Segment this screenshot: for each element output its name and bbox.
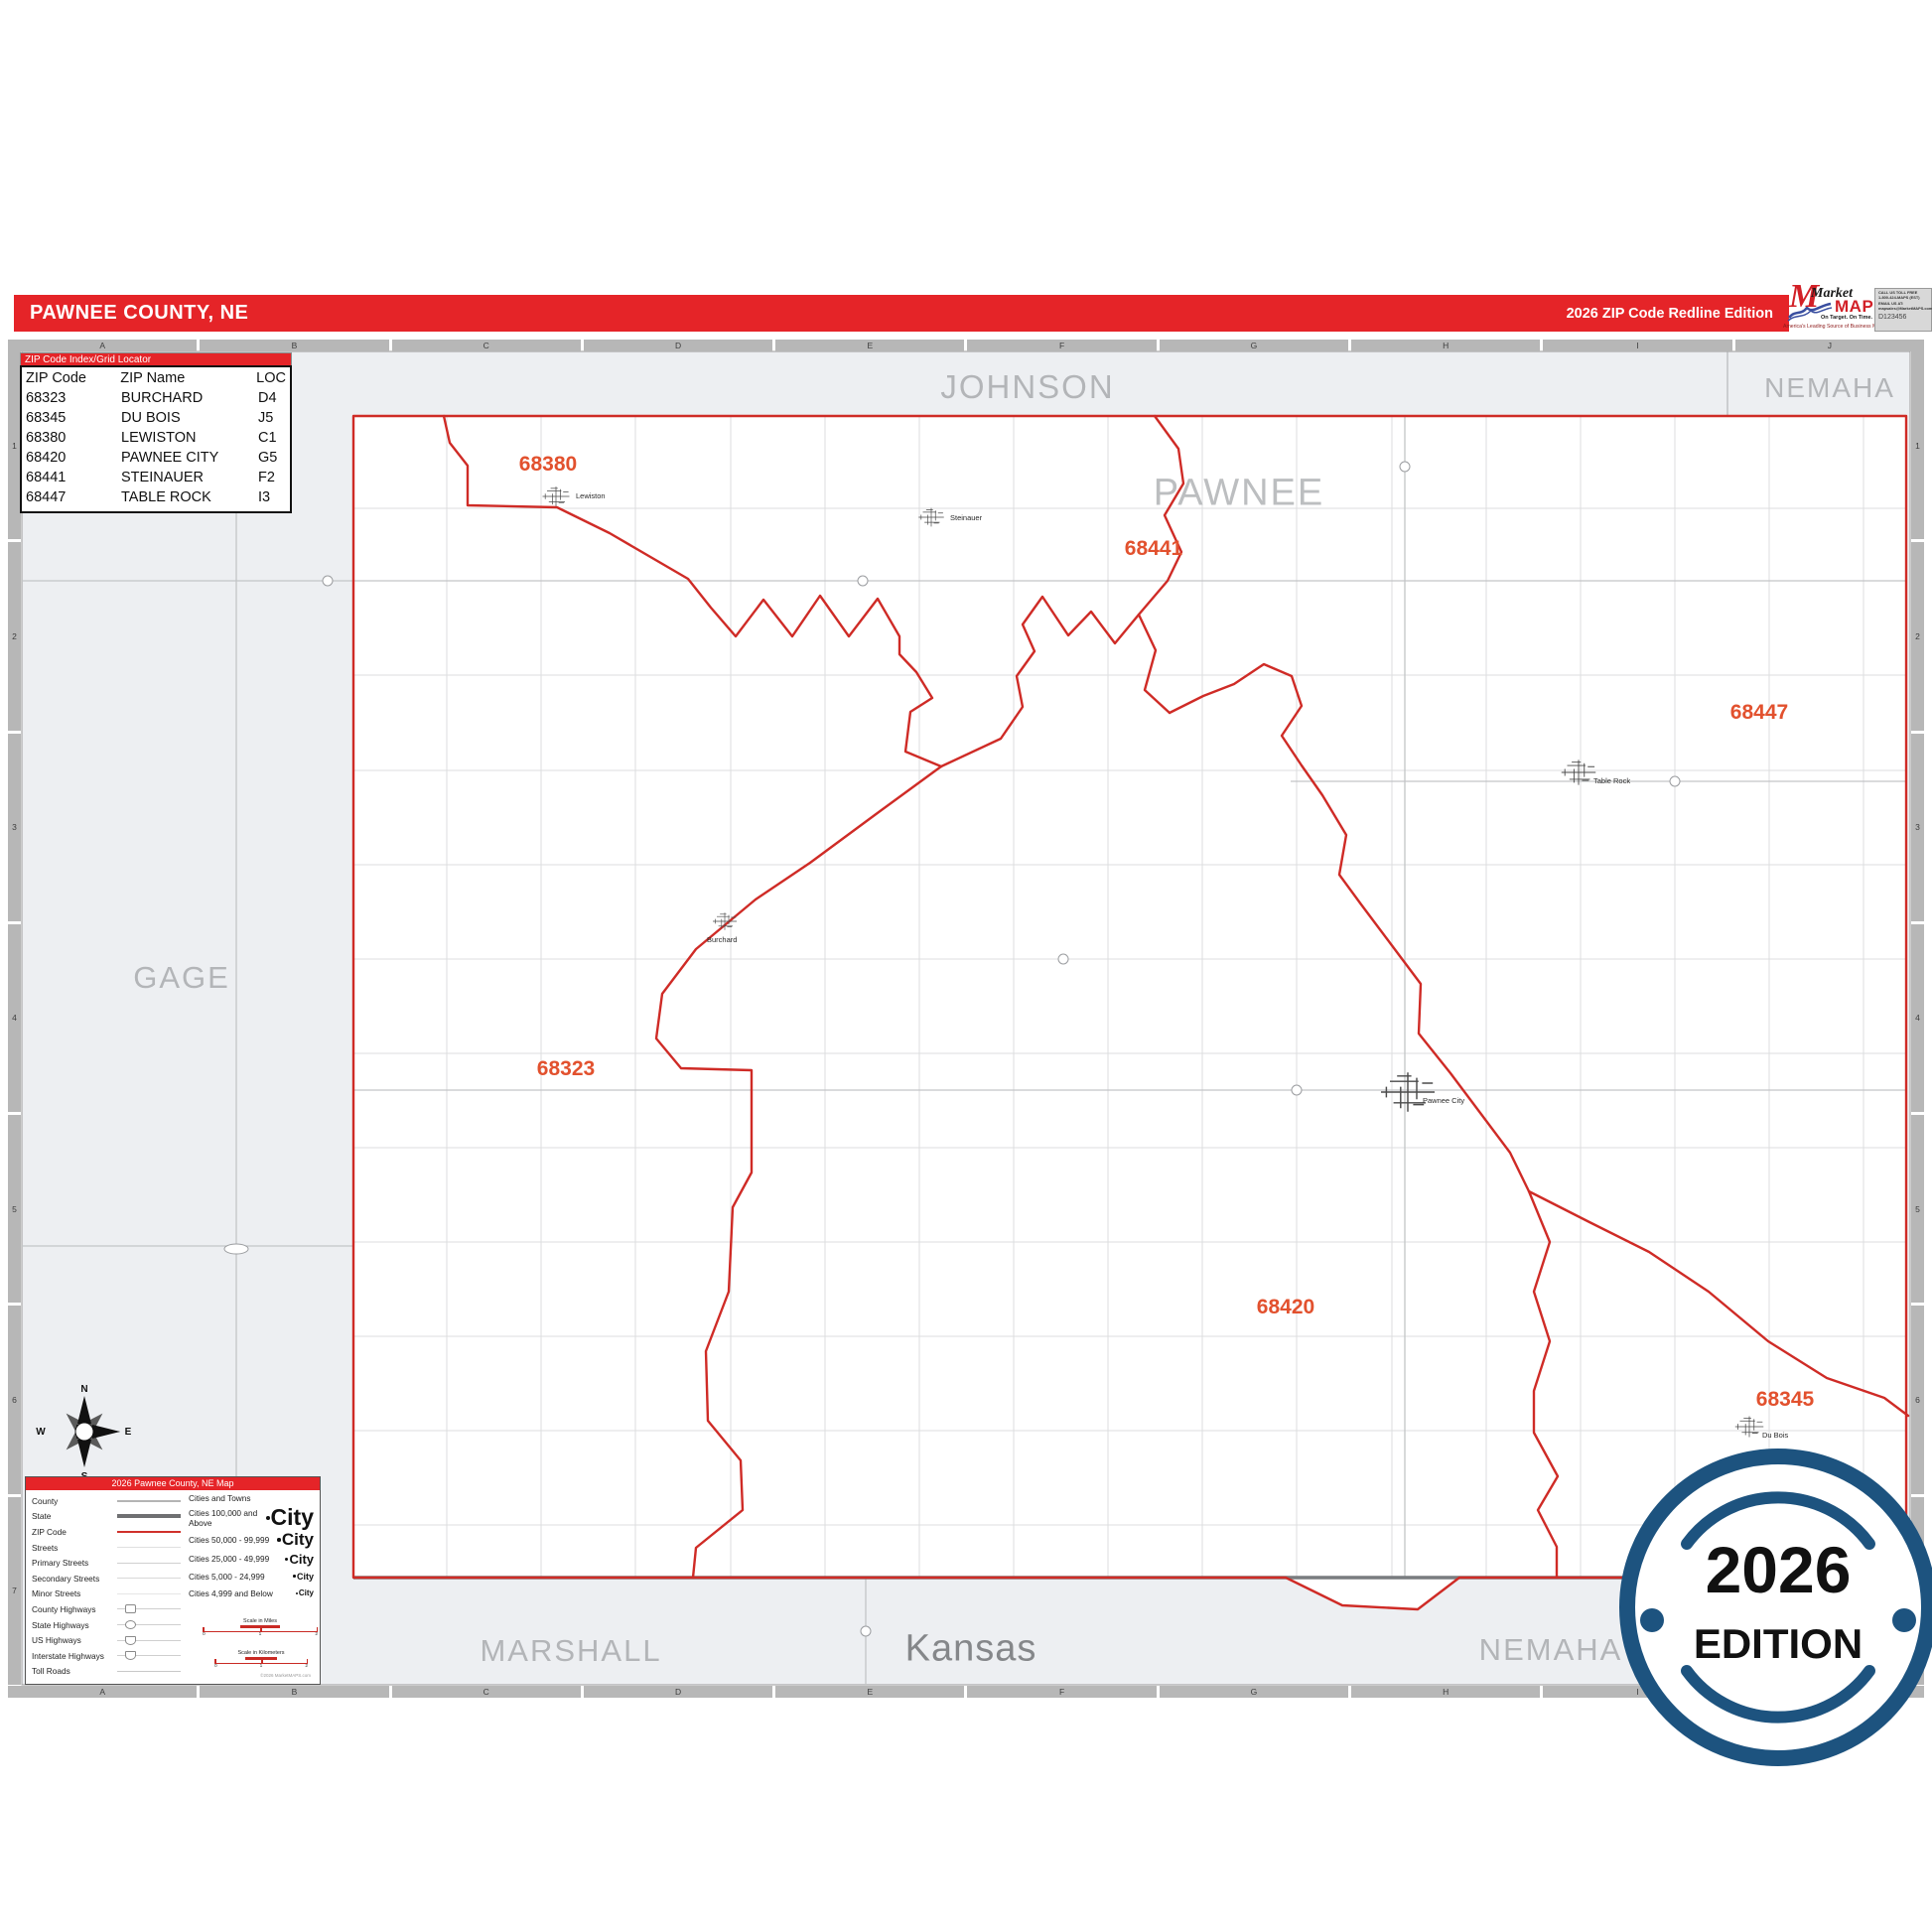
zip-line-sample: [117, 1531, 181, 1533]
grid-row-label: 2: [1911, 542, 1924, 730]
state-label-kansas: Kansas: [905, 1628, 1037, 1671]
city-dot-icon: [277, 1538, 281, 1542]
scale-km-title: Scale in Kilometers: [214, 1650, 308, 1656]
city-class-label: Cities 50,000 - 99,999: [189, 1535, 269, 1545]
grid-row-label: 3: [8, 734, 21, 921]
zip-loc-cell: J5: [258, 408, 286, 428]
grid-col-label: H: [1351, 1686, 1540, 1698]
page-title: PAWNEE COUNTY, NE: [30, 302, 248, 325]
zip-name-cell: DU BOIS: [121, 408, 258, 428]
grid-col-label: E: [775, 340, 964, 351]
town-label-steinauer: Steinauer: [950, 513, 982, 522]
edition-subtitle: 2026 ZIP Code Redline Edition: [1567, 306, 1773, 322]
town-label-pawnee-city: Pawnee City: [1423, 1096, 1464, 1105]
zip-name-cell: BURCHARD: [121, 388, 258, 408]
grid-ruler-top: A B C D E F G H I J: [8, 340, 1924, 351]
city-class-label: Cities 4,999 and Below: [189, 1588, 273, 1598]
zip-loc-cell: I3: [258, 487, 286, 507]
zip-code-cell: 68323: [26, 388, 121, 408]
contact-line: 1-800-424-MAPS (EST): [1878, 296, 1928, 301]
legend-cities: Cities and Towns Cities 100,000 and Abov…: [189, 1493, 314, 1680]
legend-item-label: Interstate Highways: [32, 1651, 117, 1661]
zip-index-row: 68323 BURCHARD D4: [26, 388, 286, 408]
neighbor-label-nemaha-bottom: NEMAHA: [1479, 1632, 1623, 1668]
zip-label-68345: 68345: [1756, 1388, 1814, 1412]
zip-code-cell: 68441: [26, 468, 121, 487]
city-sample-text: City: [289, 1552, 314, 1567]
zip-code-cell: 68447: [26, 487, 121, 507]
legend-item-label: Toll Roads: [32, 1666, 117, 1676]
city-dot-icon: [285, 1558, 288, 1561]
town-label-lewiston: Lewiston: [576, 491, 606, 500]
scale-tick: 0: [203, 1632, 206, 1637]
grid-row-label: 5: [1911, 1115, 1924, 1303]
compass-w-label: W: [36, 1427, 46, 1438]
grid-row-label: 4: [1911, 924, 1924, 1112]
town-label-burchard: Burchard: [707, 935, 737, 944]
state-highway-shield-icon: [125, 1620, 136, 1629]
grid-col-label: C: [392, 340, 581, 351]
grid-col-label: A: [8, 1686, 197, 1698]
zip-loc-cell: C1: [258, 428, 286, 448]
scale-bar-km: Scale in Kilometers 0 1 2: [214, 1650, 308, 1669]
zip-index-col-loc: LOC: [256, 368, 286, 388]
grid-col-label: G: [1160, 1686, 1348, 1698]
zip-name-cell: STEINAUER: [121, 468, 258, 487]
zip-code-cell: 68420: [26, 448, 121, 468]
county-highway-shield-icon: [125, 1604, 136, 1613]
grid-row-label: 3: [1911, 734, 1924, 921]
zip-label-68323: 68323: [537, 1057, 595, 1081]
city-sample-text: City: [297, 1572, 314, 1582]
grid-col-label: F: [967, 1686, 1156, 1698]
minor-street-line-sample: [117, 1593, 181, 1594]
city-dot-icon: [296, 1592, 298, 1594]
grid-col-label: I: [1543, 340, 1731, 351]
zip-index-title: ZIP Code Index/Grid Locator: [20, 352, 292, 365]
zip-loc-cell: D4: [258, 388, 286, 408]
logo-tagline: On Target. On Time.: [1821, 315, 1872, 321]
zip-name-cell: LEWISTON: [121, 428, 258, 448]
zip-index-header-row: ZIP Code ZIP Name LOC: [26, 368, 286, 388]
grid-row-label: 5: [8, 1115, 21, 1303]
street-line-sample: [117, 1547, 181, 1548]
grid-col-label: G: [1160, 340, 1348, 351]
legend-item-label: ZIP Code: [32, 1527, 117, 1537]
zip-name-cell: PAWNEE CITY: [121, 448, 258, 468]
map-legend: 2026 Pawnee County, NE Map County State …: [25, 1476, 321, 1685]
map-poster-page: N E S W PAWNEE COUNTY, NE 2026 ZIP Code …: [0, 0, 1932, 1932]
zip-index-row: 68345 DU BOIS J5: [26, 408, 286, 428]
grid-col-label: J: [1735, 340, 1924, 351]
town-label-table-rock: Table Rock: [1593, 776, 1630, 785]
secondary-street-line-sample: [117, 1578, 181, 1579]
zip-index-row: 68447 TABLE ROCK I3: [26, 487, 286, 507]
zip-code-cell: 68380: [26, 428, 121, 448]
legend-item-label: County: [32, 1496, 117, 1506]
zip-loc-cell: G5: [258, 448, 286, 468]
grid-col-label: D: [584, 340, 772, 351]
product-code: D123456: [1878, 314, 1928, 321]
city-dot-icon: [266, 1516, 270, 1520]
legend-item-label: Primary Streets: [32, 1558, 117, 1568]
zip-index-row: 68380 LEWISTON C1: [26, 428, 286, 448]
grid-row-label: 2: [8, 542, 21, 730]
scale-tick: 1: [260, 1664, 263, 1669]
logo-subtitle: America's Leading Source of Business Map…: [1783, 324, 1885, 330]
county-line-sample: [117, 1500, 181, 1502]
county-label-pawnee: PAWNEE: [1154, 473, 1324, 515]
scale-tick: 1: [259, 1632, 262, 1637]
city-class-label: Cities 100,000 and Above: [189, 1508, 266, 1528]
neighbor-label-gage: GAGE: [133, 960, 230, 996]
zip-index-table: ZIP Code Index/Grid Locator ZIP Code ZIP…: [20, 352, 292, 513]
us-highway-sample: [117, 1640, 181, 1641]
us-highway-shield-icon: [125, 1636, 136, 1645]
zip-index-col-code: ZIP Code: [26, 368, 120, 388]
toll-road-sample: [117, 1671, 181, 1672]
legend-item-label: Streets: [32, 1543, 117, 1553]
city-sample-text: City: [282, 1530, 314, 1550]
legend-item-label: Minor Streets: [32, 1588, 117, 1598]
zip-label-68441: 68441: [1125, 537, 1182, 561]
title-bar: PAWNEE COUNTY, NE 2026 ZIP Code Redline …: [14, 295, 1789, 332]
badge-year: 2026: [1706, 1533, 1852, 1606]
zip-name-cell: TABLE ROCK: [121, 487, 258, 507]
compass-n-label: N: [80, 1384, 87, 1395]
city-sample-text: City: [299, 1588, 314, 1597]
grid-ruler-left: 1 2 3 4 5 6 7: [8, 351, 21, 1685]
marketmaps-logo: M Market MAPS On Target. On Time. Americ…: [1789, 282, 1932, 337]
town-label-du-bois: Du Bois: [1762, 1431, 1788, 1440]
state-highway-sample: [117, 1624, 181, 1625]
state-line-sample: [117, 1514, 181, 1518]
primary-street-line-sample: [117, 1563, 181, 1564]
grid-row-label: 6: [8, 1306, 21, 1493]
legend-item-label: US Highways: [32, 1635, 117, 1645]
scale-bar-miles: Scale in Miles 0 1 2: [203, 1618, 318, 1637]
zip-label-68380: 68380: [519, 453, 577, 477]
neighbor-label-marshall: MARSHALL: [480, 1633, 661, 1669]
zip-index-row: 68441 STEINAUER F2: [26, 468, 286, 487]
scale-tick: 2: [315, 1632, 318, 1637]
legend-item-label: State Highways: [32, 1620, 117, 1630]
county-highway-sample: [117, 1608, 181, 1609]
legend-item-label: Secondary Streets: [32, 1574, 117, 1584]
edition-badge: 2026 EDITION: [1612, 1442, 1932, 1773]
logo-contact-box: CALL US TOLL FREE 1-800-424-MAPS (EST) E…: [1874, 288, 1932, 332]
zip-index-row: 68420 PAWNEE CITY G5: [26, 448, 286, 468]
legend-item-label: State: [32, 1511, 117, 1521]
grid-col-label: A: [8, 340, 197, 351]
scale-miles-title: Scale in Miles: [203, 1618, 318, 1624]
scale-tick: 0: [214, 1664, 217, 1669]
city-sample-text: City: [271, 1504, 314, 1531]
interstate-highway-sample: [117, 1655, 181, 1656]
zip-code-cell: 68345: [26, 408, 121, 428]
badge-edition-text: EDITION: [1694, 1620, 1863, 1667]
zip-loc-cell: F2: [258, 468, 286, 487]
legend-title: 2026 Pawnee County, NE Map: [26, 1477, 320, 1490]
city-class-label: Cities 25,000 - 49,999: [189, 1554, 269, 1564]
zip-index-col-name: ZIP Name: [120, 368, 256, 388]
grid-row-label: 4: [8, 924, 21, 1112]
neighbor-label-nemaha-top: NEMAHA: [1764, 372, 1895, 404]
interstate-shield-icon: [125, 1651, 136, 1660]
grid-col-label: H: [1351, 340, 1540, 351]
grid-col-label: D: [584, 1686, 772, 1698]
legend-fine-print: ©2026 MarketMAPS.com: [260, 1673, 311, 1678]
zip-label-68420: 68420: [1257, 1296, 1314, 1319]
city-class-label: Cities 5,000 - 24,999: [189, 1572, 265, 1582]
zip-label-68447: 68447: [1730, 701, 1788, 725]
grid-col-label: F: [967, 340, 1156, 351]
grid-row-label: 1: [1911, 351, 1924, 539]
grid-col-label: E: [775, 1686, 964, 1698]
grid-col-label: B: [200, 340, 388, 351]
city-dot-icon: [293, 1575, 296, 1578]
contact-line: mapsales@MarketMAPS.com: [1878, 307, 1928, 312]
grid-col-label: C: [392, 1686, 581, 1698]
scale-tick: 2: [305, 1664, 308, 1669]
legend-item-label: County Highways: [32, 1604, 117, 1614]
grid-row-label: 7: [8, 1497, 21, 1685]
legend-line-styles: County State ZIP Code Streets Primary St…: [32, 1493, 189, 1680]
compass-e-label: E: [125, 1427, 132, 1438]
neighbor-label-johnson: JOHNSON: [940, 368, 1114, 406]
grid-col-label: B: [200, 1686, 388, 1698]
